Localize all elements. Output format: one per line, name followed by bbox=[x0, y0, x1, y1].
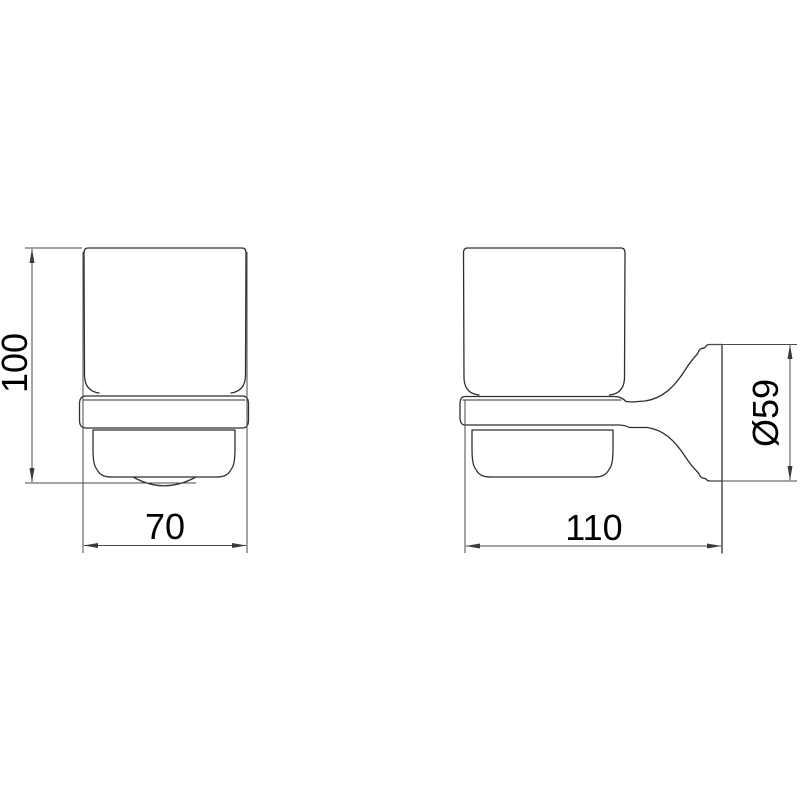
arrowhead-down bbox=[30, 468, 35, 483]
arrowhead-down bbox=[788, 466, 793, 481]
glass-front-outline bbox=[84, 248, 246, 393]
holder-bowl-front bbox=[93, 430, 235, 477]
diameter-dimension-label: Ø59 bbox=[745, 379, 786, 447]
holder-bowl-side bbox=[472, 430, 613, 477]
depth-dimension-label: 110 bbox=[565, 507, 622, 548]
height-dimension-label: 100 bbox=[0, 333, 35, 393]
side-view: 110 Ø59 bbox=[460, 248, 797, 553]
holder-ring-side-edge bbox=[460, 397, 465, 426]
arrowhead-right bbox=[707, 544, 722, 549]
width-dimension-label: 70 bbox=[145, 506, 185, 547]
dimension-width: 70 bbox=[83, 252, 247, 553]
holder-ring-front bbox=[80, 396, 249, 428]
arrowhead-up bbox=[788, 345, 793, 360]
bracket-arm-top-contour bbox=[614, 345, 722, 403]
front-view: 100 70 bbox=[0, 248, 249, 553]
glass-bottom-arc bbox=[134, 478, 195, 486]
bracket-arm-bottom-contour bbox=[465, 425, 722, 481]
arrowhead-left bbox=[84, 543, 99, 548]
arrowhead-left bbox=[466, 544, 481, 549]
technical-drawing-canvas: 100 70 bbox=[0, 0, 800, 800]
arrowhead-right bbox=[232, 543, 247, 548]
technical-drawing-page: 100 70 bbox=[0, 0, 800, 800]
glass-side-outline bbox=[464, 248, 626, 395]
arrowhead-up bbox=[30, 249, 35, 264]
dimension-height: 100 bbox=[0, 248, 196, 483]
